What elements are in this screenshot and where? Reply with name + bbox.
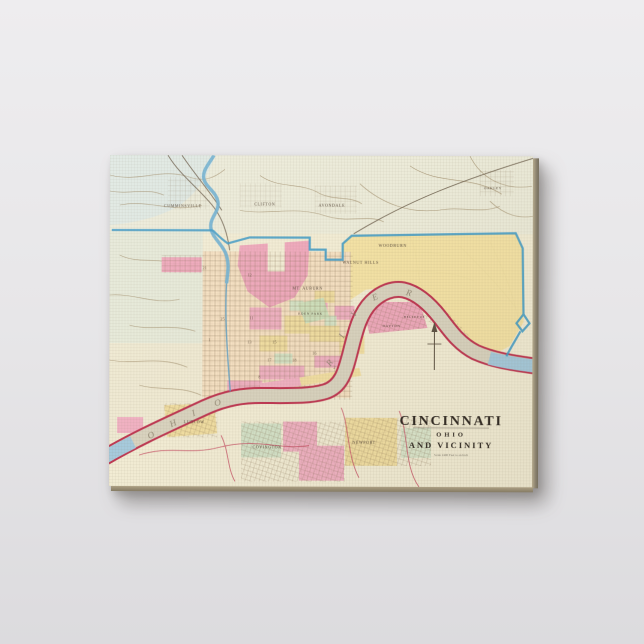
map-label: CLIFTON	[254, 201, 275, 206]
map-label: AVONDALE	[319, 203, 346, 208]
map-subtitle-ohio: OHIO	[436, 432, 466, 439]
product-photo-background: O H I O R I V E R CUMMINSVILLE CLIFTON A…	[0, 0, 644, 644]
map-label: WOODBURN	[379, 243, 407, 248]
map-label: BELLEVUE	[404, 315, 425, 319]
map-label: LUDLOW	[184, 419, 205, 424]
ward-number: 12	[248, 272, 252, 277]
vintage-cincinnati-map: O H I O R I V E R CUMMINSVILLE CLIFTON A…	[109, 155, 533, 487]
canvas-side-edge-right	[532, 158, 539, 488]
ward-number: 8	[258, 374, 260, 379]
ward-number: 1	[208, 337, 210, 342]
map-label: COVINGTON	[253, 444, 282, 449]
canvas-side-edge-bottom	[111, 486, 533, 492]
map-label: OAKLEY	[484, 186, 502, 190]
map-subtitle-vicinity: AND VICINITY	[409, 440, 494, 450]
canvas-print-mockup: O H I O R I V E R CUMMINSVILLE CLIFTON A…	[109, 155, 541, 494]
ward-number: 17	[267, 357, 271, 362]
ward-number: 13	[247, 339, 251, 344]
map-label: CUMMINSVILLE	[164, 203, 202, 208]
ward-number: 11	[249, 315, 253, 320]
ward-number: 15	[272, 340, 276, 345]
map-label: MT. AUBURN	[292, 286, 322, 291]
ward-number: 16	[312, 351, 316, 356]
map-label: NEWPORT	[352, 440, 375, 445]
map-label: EDEN PARK	[298, 312, 323, 316]
ward-number: 2	[333, 365, 335, 370]
ward-number: 21	[203, 265, 207, 270]
map-artwork: O H I O R I V E R CUMMINSVILLE CLIFTON A…	[109, 155, 533, 487]
ward-number: 25	[220, 316, 224, 321]
map-label: DAYTON	[382, 324, 400, 328]
map-label: WALNUT HILLS	[342, 260, 378, 265]
map-title: CINCINNATI	[399, 414, 502, 429]
map-scale-text: Scale 2400 Feet to an Inch	[434, 453, 468, 457]
ward-number: 18	[292, 358, 296, 363]
